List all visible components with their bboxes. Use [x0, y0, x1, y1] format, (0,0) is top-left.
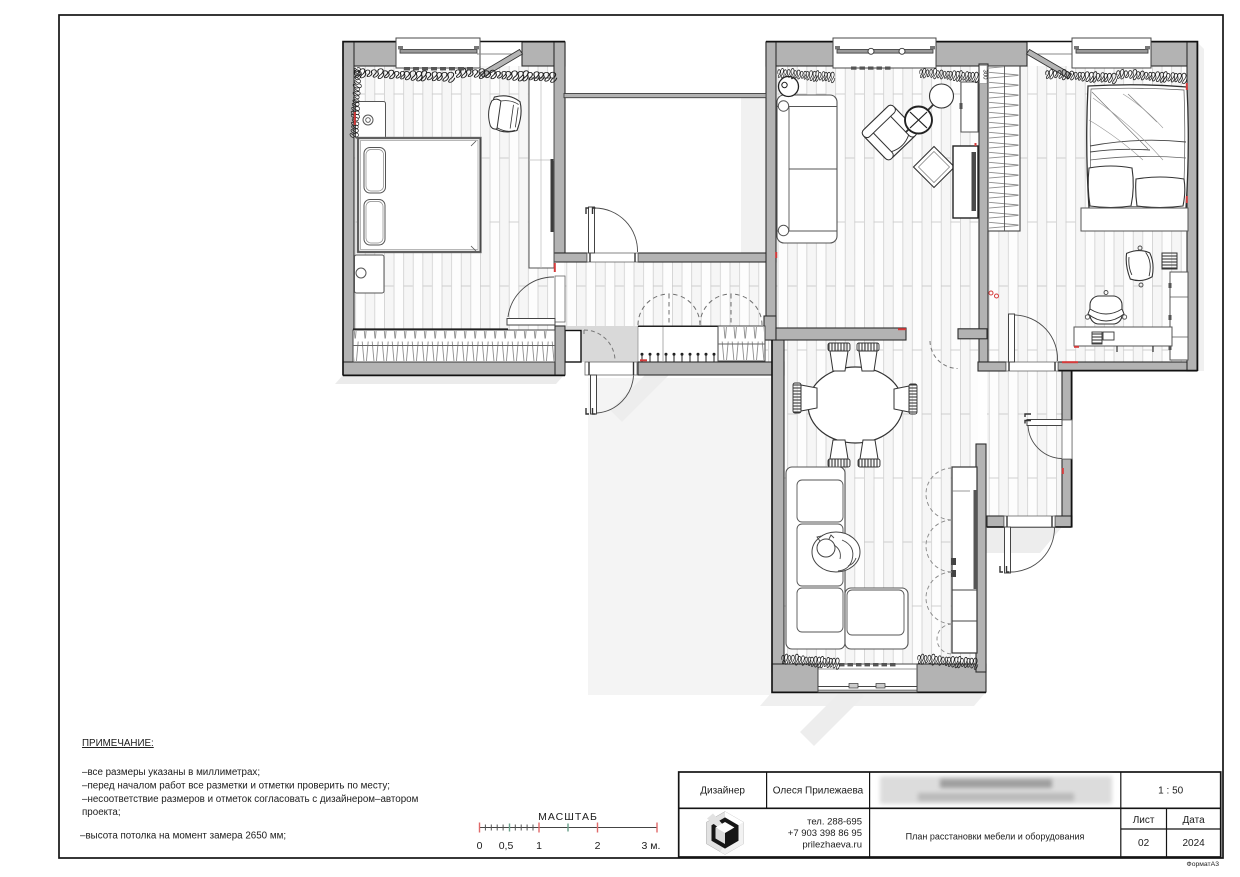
svg-text:Дата: Дата	[1183, 815, 1206, 826]
svg-text:ПРИМЕЧАНИЕ:: ПРИМЕЧАНИЕ:	[82, 738, 154, 749]
svg-text:3 м.: 3 м.	[642, 840, 661, 852]
svg-text:0,5: 0,5	[499, 840, 514, 852]
svg-text:1: 1	[536, 840, 542, 852]
svg-text:2024: 2024	[1182, 838, 1205, 849]
svg-text:–перед началом работ все разме: –перед началом работ все разметки и отме…	[82, 781, 390, 792]
svg-text:тел. 288-695: тел. 288-695	[807, 817, 862, 828]
svg-text:–высота потолка на момент заме: –высота потолка на момент замера 2650 мм…	[80, 831, 286, 842]
svg-text:Дизайнер: Дизайнер	[700, 786, 745, 797]
svg-text:0: 0	[477, 840, 483, 852]
svg-text:+7 903 398 86 95: +7 903 398 86 95	[788, 828, 862, 839]
svg-text:ФорматА3: ФорматА3	[1187, 861, 1220, 868]
svg-text:–несоответствие размеров и отм: –несоответствие размеров и отметок согла…	[82, 794, 419, 805]
svg-text:prilezhaeva.ru: prilezhaeva.ru	[802, 840, 862, 851]
svg-text:2: 2	[595, 840, 601, 852]
svg-text:МАСШТАБ: МАСШТАБ	[538, 811, 598, 823]
svg-text:–все размеры указаны в миллиме: –все размеры указаны в миллиметрах;	[82, 767, 260, 778]
svg-text:Олеся Прилежаева: Олеся Прилежаева	[773, 786, 864, 797]
svg-text:1 : 50: 1 : 50	[1158, 786, 1183, 797]
svg-text:проекта;: проекта;	[82, 807, 121, 818]
svg-text:План расстановки мебели и обор: План расстановки мебели и оборудования	[906, 832, 1085, 842]
svg-text:300: 300	[982, 69, 988, 80]
svg-text:02: 02	[1138, 838, 1150, 849]
svg-text:Лист: Лист	[1133, 815, 1155, 826]
